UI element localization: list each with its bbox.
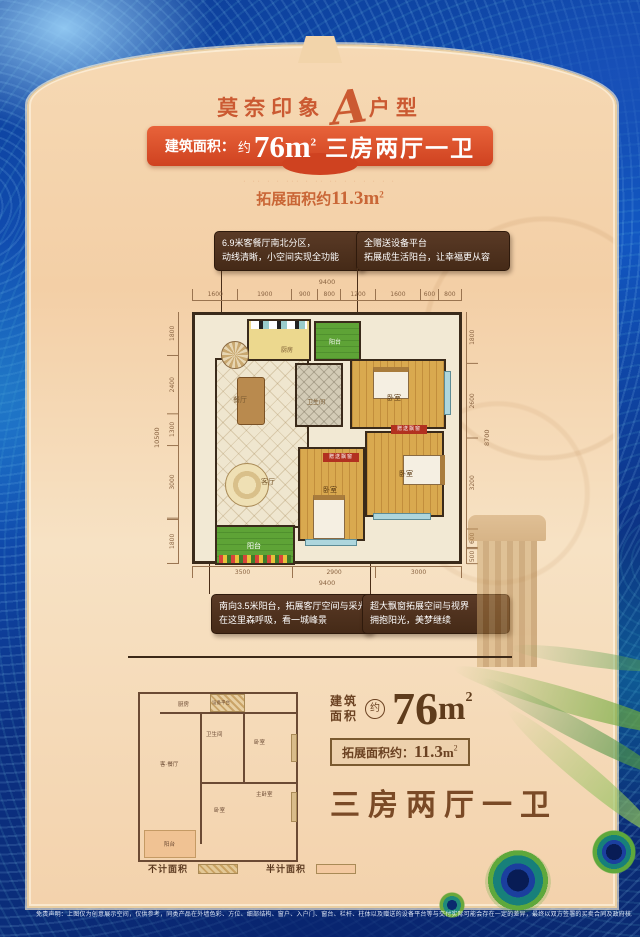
mini-label-kitchen: 厨房 <box>178 700 189 708</box>
mini-label-master: 主卧室 <box>256 790 273 798</box>
label-bedroom-top: 卧室 <box>387 393 401 403</box>
legend-not-counted-label: 不计面积 <box>148 862 188 875</box>
mini-wall <box>200 712 202 844</box>
banner-area-value: 76m2 <box>254 131 316 162</box>
window-sill-master <box>373 513 431 520</box>
floor-plan: 餐厅 客厅 厨房 阳台 卫生间 卧室 卧室 卧室 阳台 赠送飘窗 赠送飘窗 <box>192 312 462 564</box>
callout-south-balcony: 南向3.5米阳台，拓展客厅空间与采光 在这里森呼吸，看一城峰景 <box>211 594 373 634</box>
bay-window-sill-right <box>444 371 451 415</box>
label-bathroom: 卫生间 <box>307 397 325 406</box>
dim-top-row: 1600 1900 900 800 1200 1600 600 800 <box>192 289 462 301</box>
summary-build-label: 建筑 面积 <box>330 694 358 724</box>
label-kitchen: 厨房 <box>281 345 293 354</box>
mini-label-bed-top: 卧室 <box>254 738 265 746</box>
area-legend: 不计面积 半计面积 <box>148 862 356 875</box>
summary-expand-box: 拓展面积约：11.3m2 <box>330 738 470 766</box>
label-living: 客厅 <box>261 477 275 487</box>
title-script-a: A <box>329 82 369 131</box>
legend-not-counted-swatch <box>198 864 238 874</box>
page-title: 莫奈印象 A 户型 <box>0 84 640 130</box>
callout-living-zoning: 6.9米客餐厅南北分区， 动线清晰，小空间实现全功能 <box>214 231 364 271</box>
mini-floor-plan: 厨房 设备平台 卫生间 卧室 客·餐厅 主卧室 卧室 阳台 <box>138 692 298 862</box>
mini-label-balcony: 阳台 <box>164 840 175 848</box>
mini-bay-window-1 <box>291 734 297 762</box>
mini-wall <box>160 712 296 714</box>
summary-room-count: 三房两厅一卫 <box>330 780 550 824</box>
dim-bottom-total: 9400 <box>192 579 462 587</box>
disclaimer-text: 免责声明：上图仅为创意展示空间，仅供参考，同类产品在外墙色彩、方位、细部结构、窗… <box>36 909 632 918</box>
fine-print-line: · ·· · · ··· · ·· ·· · · · · · · <box>0 179 640 185</box>
label-balcony-bottom: 阳台 <box>247 541 261 551</box>
legend-half-counted-swatch <box>316 864 356 874</box>
title-right: 户型 <box>369 92 423 122</box>
mini-label-bed: 卧室 <box>214 806 225 814</box>
column-capital <box>468 515 546 541</box>
dim-left-total: 10500 <box>152 312 162 564</box>
summary-area-value: 76 <box>392 686 438 732</box>
label-bedroom-mid: 卧室 <box>323 485 337 495</box>
callout-equipment-platform: 全赠送设备平台 拓展成生活阳台，让幸福更从容 <box>356 231 510 271</box>
section-divider <box>128 656 512 658</box>
peacock-feather-eye-icon <box>485 850 551 916</box>
legend-half-counted-label: 半计面积 <box>266 862 306 875</box>
dim-top-total: 9400 <box>192 278 462 286</box>
summary-area-unit: m2 <box>438 690 473 728</box>
kitchen-counter-icon <box>251 321 307 329</box>
title-left: 莫奈印象 <box>217 92 325 122</box>
room-bathroom <box>295 363 343 427</box>
mini-label-bath: 卫生间 <box>206 730 223 738</box>
banner-approx: 约 <box>238 137 251 156</box>
banner-area-label: 建筑面积： <box>165 136 235 156</box>
bed-mid-icon <box>313 495 345 539</box>
label-balcony-top: 阳台 <box>329 337 341 346</box>
label-dining: 餐厅 <box>233 395 247 405</box>
entry-medallion-icon <box>221 341 249 369</box>
window-sill-bed-mid <box>305 539 357 546</box>
label-bedroom-master: 卧室 <box>399 469 413 479</box>
summary-approx-circle: 约 <box>365 699 385 719</box>
area-banner: 建筑面积： 约 76m2 三房两厅一卫 <box>147 126 493 166</box>
expand-area-line: 拓展面积约11.3m2 <box>0 188 640 210</box>
mini-bay-window-2 <box>291 792 297 822</box>
mini-wall <box>200 782 296 784</box>
mini-label-platform: 设备平台 <box>212 700 230 706</box>
dim-bottom-row: 3500 2900 3000 <box>192 566 462 578</box>
mini-label-living: 客·餐厅 <box>160 760 178 768</box>
banner-room-count: 三房两厅一卫 <box>325 129 475 163</box>
dim-left-col: 1800 2400 1300 3000 1800 <box>167 312 179 564</box>
gift-bay-window-tag-2: 赠送飘窗 <box>323 453 359 462</box>
gift-bay-window-tag-1: 赠送飘窗 <box>391 425 427 434</box>
peacock-feather-eye-icon <box>592 830 636 874</box>
mini-wall <box>243 712 245 782</box>
flower-planter-icon <box>219 555 291 563</box>
